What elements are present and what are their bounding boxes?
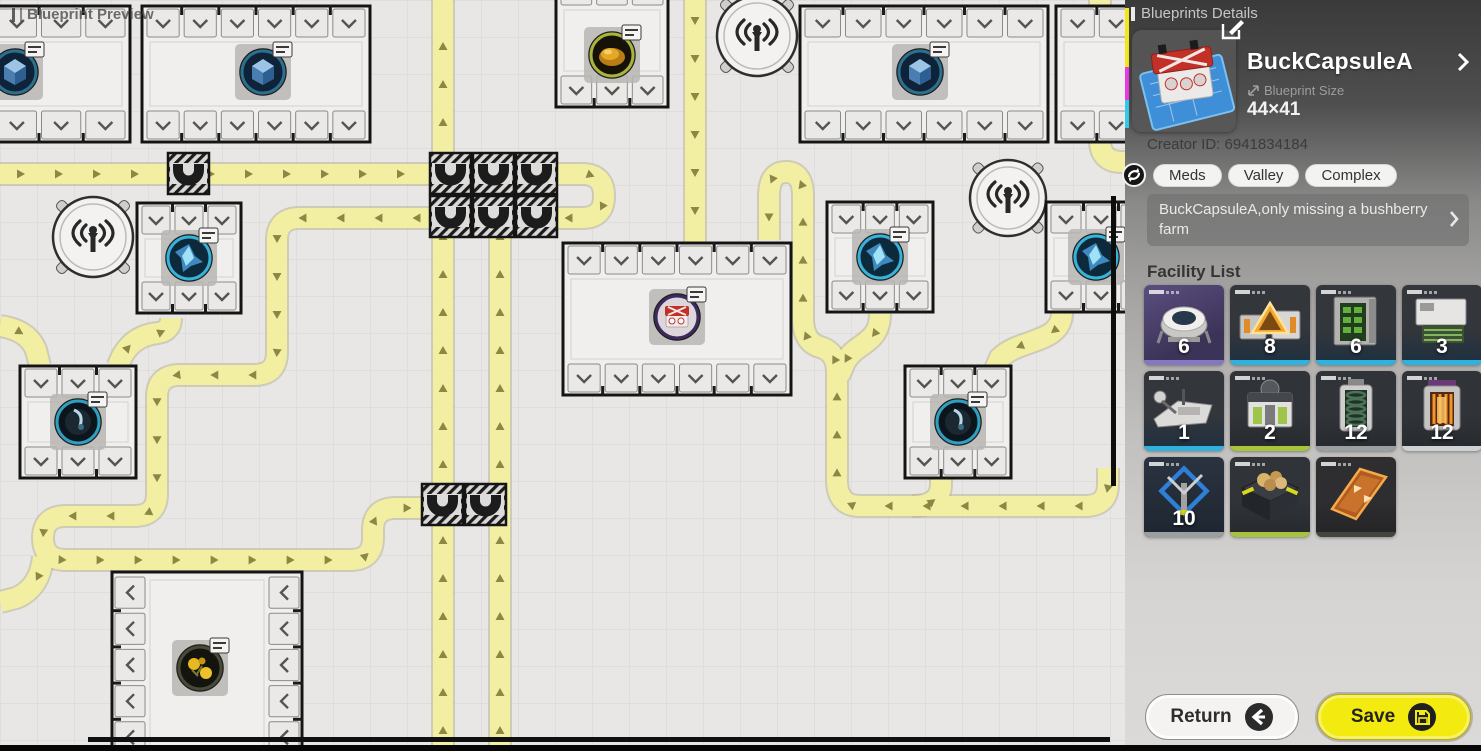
blueprint-thumbnail[interactable] xyxy=(1132,30,1236,132)
signal-tower[interactable] xyxy=(53,197,133,277)
facility-rarity-bar xyxy=(1402,360,1481,365)
facility-count: 12 xyxy=(1316,421,1396,445)
underpass-block[interactable] xyxy=(465,484,506,525)
machine-flower[interactable] xyxy=(172,638,229,696)
facility-card[interactable]: 6 xyxy=(1144,285,1224,365)
facility-card[interactable]: 8 xyxy=(1230,285,1310,365)
factory-building[interactable] xyxy=(905,365,1011,479)
facility-count: 3 xyxy=(1402,335,1481,359)
blueprint-preview-canvas[interactable]: Blueprint Preview xyxy=(0,0,1125,751)
edge-accent-segment xyxy=(1125,100,1129,128)
chevron-right-icon[interactable] xyxy=(1457,52,1469,77)
tag-pill-meds[interactable]: Meds xyxy=(1153,164,1222,187)
facility-count: 12 xyxy=(1402,421,1481,445)
factory-building[interactable] xyxy=(137,202,241,314)
facility-list-title: Facility List xyxy=(1147,262,1241,282)
underpass-block[interactable] xyxy=(473,196,514,237)
creator-id: Creator ID: 6941834184 xyxy=(1147,136,1308,153)
priority-chip xyxy=(25,42,44,57)
facility-grid: 686312121210 xyxy=(1144,285,1481,537)
factory-building[interactable] xyxy=(827,201,933,313)
facility-rarity-bar xyxy=(1316,360,1396,365)
facility-card[interactable]: 6 xyxy=(1316,285,1396,365)
signal-tower[interactable] xyxy=(970,160,1046,236)
facility-card[interactable]: 3 xyxy=(1402,285,1481,365)
facility-card[interactable] xyxy=(1230,457,1310,537)
facility-rarity-bar xyxy=(1230,532,1310,537)
edge-accent-segment xyxy=(1125,8,1129,67)
machine-crystal[interactable] xyxy=(161,228,218,286)
blueprint-size-label: Blueprint Size xyxy=(1264,83,1344,98)
priority-chip xyxy=(687,287,706,302)
header-bar-icon xyxy=(1131,7,1135,21)
expand-icon xyxy=(1247,84,1260,97)
blueprint-details-panel: Blueprints Details xyxy=(1125,0,1481,751)
facility-rarity-bar xyxy=(1316,446,1396,451)
tag-pill-valley[interactable]: Valley xyxy=(1228,164,1300,187)
facility-icon-farmbox xyxy=(1234,463,1306,523)
facility-card[interactable]: 10 xyxy=(1144,457,1224,537)
tag-category-icon xyxy=(1121,162,1147,188)
signal-tower[interactable] xyxy=(717,0,797,76)
underpass-block[interactable] xyxy=(473,153,514,194)
edit-name-icon[interactable] xyxy=(1219,16,1245,42)
facility-rarity-bar xyxy=(1144,532,1224,537)
facility-card[interactable] xyxy=(1316,457,1396,537)
machine-crystal[interactable] xyxy=(1068,227,1125,285)
machine-sphere[interactable] xyxy=(930,392,987,450)
facility-count: 8 xyxy=(1230,335,1310,359)
underpass-block[interactable] xyxy=(516,153,557,194)
priority-chip xyxy=(273,42,292,57)
facility-rarity-bar xyxy=(1402,446,1481,451)
facility-icon-ramp xyxy=(1320,463,1392,523)
facility-rarity-bar xyxy=(1230,446,1310,451)
machine-cube[interactable] xyxy=(235,42,292,100)
facility-rarity-bar xyxy=(1230,360,1310,365)
return-button-label: Return xyxy=(1170,706,1231,728)
save-disk-icon xyxy=(1407,702,1437,732)
horizontal-scrollbar[interactable] xyxy=(88,737,1110,742)
underpass-block[interactable] xyxy=(516,196,557,237)
description-text: BuckCapsuleA,only missing a bushberry fa… xyxy=(1159,201,1427,238)
facility-count: 1 xyxy=(1144,421,1224,445)
facility-rarity-bar xyxy=(1144,446,1224,451)
machine-crystal[interactable] xyxy=(852,227,909,285)
edge-accent-segment xyxy=(1125,67,1129,100)
return-button[interactable]: Return xyxy=(1145,694,1299,740)
blueprint-size-value: 44×41 xyxy=(1247,99,1300,121)
machine-capsule[interactable] xyxy=(649,287,706,345)
facility-count: 6 xyxy=(1144,335,1224,359)
machine-sphere[interactable] xyxy=(50,392,107,450)
underpass-block[interactable] xyxy=(168,153,209,194)
machine-cube[interactable] xyxy=(892,42,949,100)
facility-card[interactable]: 12 xyxy=(1316,371,1396,451)
facility-card[interactable]: 12 xyxy=(1402,371,1481,451)
priority-chip xyxy=(968,392,987,407)
factory-building[interactable] xyxy=(563,242,791,396)
tags-row: MedsValleyComplex xyxy=(1121,162,1397,188)
priority-chip xyxy=(930,42,949,57)
blueprint-name: BuckCapsuleA xyxy=(1247,48,1413,75)
machine-amber[interactable] xyxy=(584,25,641,83)
factory-building[interactable] xyxy=(1056,5,1125,143)
tag-pill-complex[interactable]: Complex xyxy=(1305,164,1396,187)
factory-building[interactable] xyxy=(111,572,303,751)
bottom-scrollbar-track[interactable] xyxy=(0,745,1481,751)
factory-building[interactable] xyxy=(800,5,1048,143)
factory-building[interactable] xyxy=(556,0,668,108)
save-button-label: Save xyxy=(1351,706,1395,728)
back-arrow-icon xyxy=(1244,702,1274,732)
underpass-block[interactable] xyxy=(430,196,471,237)
factory-building[interactable] xyxy=(142,5,370,143)
factory-building[interactable] xyxy=(20,365,136,479)
factory-building[interactable] xyxy=(0,5,130,143)
blueprint-size-row: Blueprint Size xyxy=(1247,83,1344,98)
facility-count: 2 xyxy=(1230,421,1310,445)
vertical-scrollbar[interactable] xyxy=(1111,196,1116,486)
chevron-right-icon xyxy=(1449,210,1459,234)
facility-rarity-bar xyxy=(1144,360,1224,365)
underpass-block[interactable] xyxy=(430,153,471,194)
priority-chip xyxy=(622,25,641,40)
facility-card[interactable]: 2 xyxy=(1230,371,1310,451)
save-button[interactable]: Save xyxy=(1317,694,1471,740)
underpass-block[interactable] xyxy=(422,484,463,525)
blueprint-share-screen: Blueprint Preview Blueprints Details xyxy=(0,0,1481,751)
priority-chip xyxy=(88,392,107,407)
facility-count: 10 xyxy=(1144,507,1224,531)
description-box[interactable]: BuckCapsuleA,only missing a bushberry fa… xyxy=(1147,194,1469,246)
priority-chip xyxy=(210,638,229,653)
facility-count: 6 xyxy=(1316,335,1396,359)
facility-card[interactable]: 1 xyxy=(1144,371,1224,451)
priority-chip xyxy=(890,227,909,242)
machine-cube[interactable] xyxy=(0,42,44,100)
facility-rarity-bar xyxy=(1316,532,1396,537)
priority-chip xyxy=(199,228,218,243)
